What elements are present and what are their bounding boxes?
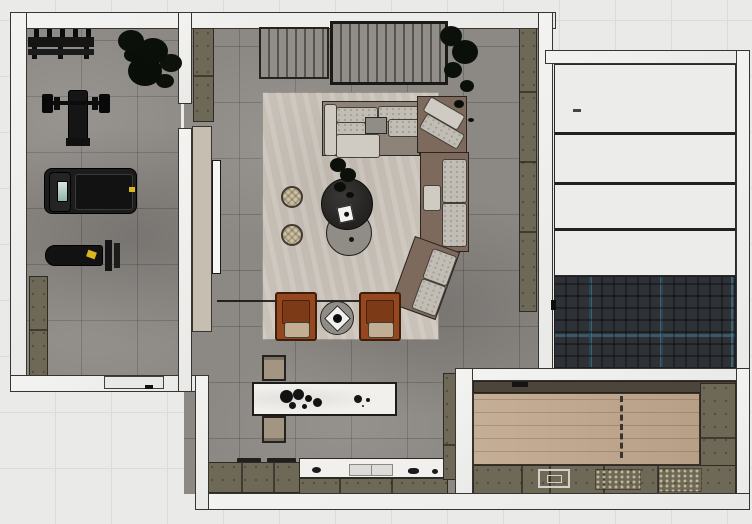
herringbone-floor — [554, 276, 736, 368]
kitchen-marble-counter — [299, 458, 448, 478]
gym-plant — [118, 30, 144, 52]
armchair — [359, 292, 401, 341]
herringbone-edge-mark — [551, 300, 556, 310]
side-table — [320, 301, 354, 335]
bench-foot — [66, 138, 90, 146]
cabinet-divider — [701, 437, 735, 439]
plant-foliage — [118, 30, 144, 52]
sofa-right-section — [420, 152, 469, 252]
barbell-plate — [99, 94, 110, 113]
tv — [212, 160, 221, 274]
sliding-door-dashed-marker — [620, 396, 623, 458]
wall-wing-right — [736, 50, 750, 382]
sofa-armrest-cushion — [423, 185, 441, 211]
plant-foliage — [330, 158, 346, 172]
counter-item — [408, 468, 419, 474]
wall-living-right — [538, 12, 553, 380]
floor-plan — [0, 0, 752, 524]
bar-stool — [262, 355, 286, 381]
living-room-plant — [440, 26, 462, 46]
br-trim-handle — [512, 382, 528, 387]
cabinet-divider — [339, 479, 341, 493]
coffee-table-plant — [330, 158, 346, 172]
island-decor-small — [354, 395, 362, 403]
cabinet-divider — [391, 479, 393, 493]
panel-divider — [555, 182, 735, 185]
barbell-plate — [42, 94, 53, 113]
slatted-panel-framed — [330, 21, 448, 85]
sofa-tray — [365, 117, 387, 134]
book-decor — [344, 211, 350, 217]
kitchen-sink — [349, 464, 393, 476]
gym-storage-cabinet — [29, 276, 48, 378]
incline-post — [105, 240, 112, 271]
wall-gym-living-divider-upper — [178, 12, 192, 104]
wall-gym-left — [10, 12, 27, 392]
barbell-plate — [92, 97, 98, 110]
white-paneled-area — [554, 64, 736, 276]
wall-bottomright-left — [455, 368, 473, 510]
incline-bench — [43, 240, 123, 271]
treadmill-logo — [129, 187, 135, 192]
rack-rail — [28, 49, 94, 55]
slatted-panel — [259, 27, 329, 79]
pouf — [281, 186, 303, 208]
counter-item — [312, 467, 321, 473]
pouf — [281, 224, 303, 246]
sofa-ottoman-cushion — [336, 134, 380, 158]
sofa-cushion — [442, 203, 467, 247]
bench-press-station — [42, 88, 110, 148]
gym-exterior-door — [104, 376, 164, 389]
wall-wing-top — [545, 50, 750, 64]
sofa-seat-cushion — [388, 119, 420, 137]
cabinet-divider — [30, 329, 47, 331]
br-side-cabinet-column — [700, 383, 736, 467]
armchair-back — [282, 300, 310, 324]
wall-shelf-right — [519, 28, 537, 312]
coffee-table-dark — [321, 178, 373, 230]
armchair-back — [366, 300, 394, 324]
treadmill — [44, 168, 137, 214]
incline-post — [114, 243, 120, 268]
shelf-divider — [194, 75, 213, 77]
wall-bottomright-top — [458, 368, 750, 381]
wall-gym-living-divider-lower — [178, 128, 192, 392]
wall-center-left-lower — [195, 375, 209, 510]
counter-divider — [521, 466, 523, 493]
panel-mark — [573, 109, 581, 112]
br-sink — [538, 469, 570, 488]
shelf-divider — [520, 161, 536, 163]
shelf-divider — [520, 91, 536, 93]
counter-item — [432, 469, 438, 474]
treadmill-deck — [75, 174, 133, 210]
shelf-divider — [520, 231, 536, 233]
sofa-top-section — [322, 101, 420, 156]
wall-bottom — [195, 493, 750, 510]
kitchen-base-cabinets — [299, 478, 448, 494]
rack-rail — [28, 37, 94, 47]
tv-wall-panel — [192, 126, 212, 332]
armchair — [275, 292, 317, 341]
panel-divider — [555, 228, 735, 231]
door-handle — [145, 385, 153, 389]
side-table-decor — [333, 314, 342, 323]
br-counter-decor — [658, 468, 702, 492]
wall-bottomright-right — [736, 368, 750, 510]
armchair-seat — [284, 322, 310, 338]
kitchen-counter-left — [208, 462, 300, 493]
counter-divider — [241, 463, 243, 492]
wood-floor — [473, 393, 700, 465]
table-book — [337, 205, 355, 224]
br-counter-decor — [595, 469, 641, 490]
armchair-seat — [368, 322, 394, 338]
sofa-cushion — [442, 159, 467, 203]
kitchen-island — [252, 382, 397, 416]
dumbbell-rack — [28, 29, 94, 59]
panel-divider — [555, 132, 735, 135]
sink-divider — [371, 465, 372, 475]
plant-foliage — [440, 26, 462, 46]
counter-divider — [273, 463, 275, 492]
island-decor-plant — [280, 390, 293, 403]
bar-stool — [262, 416, 286, 443]
sofa-corner-section — [417, 96, 467, 153]
br-sink-basin — [547, 475, 562, 483]
barbell-plate — [54, 97, 60, 110]
table-decor — [349, 237, 354, 242]
treadmill-screen — [57, 181, 68, 202]
wall-shelf-left — [193, 28, 214, 122]
